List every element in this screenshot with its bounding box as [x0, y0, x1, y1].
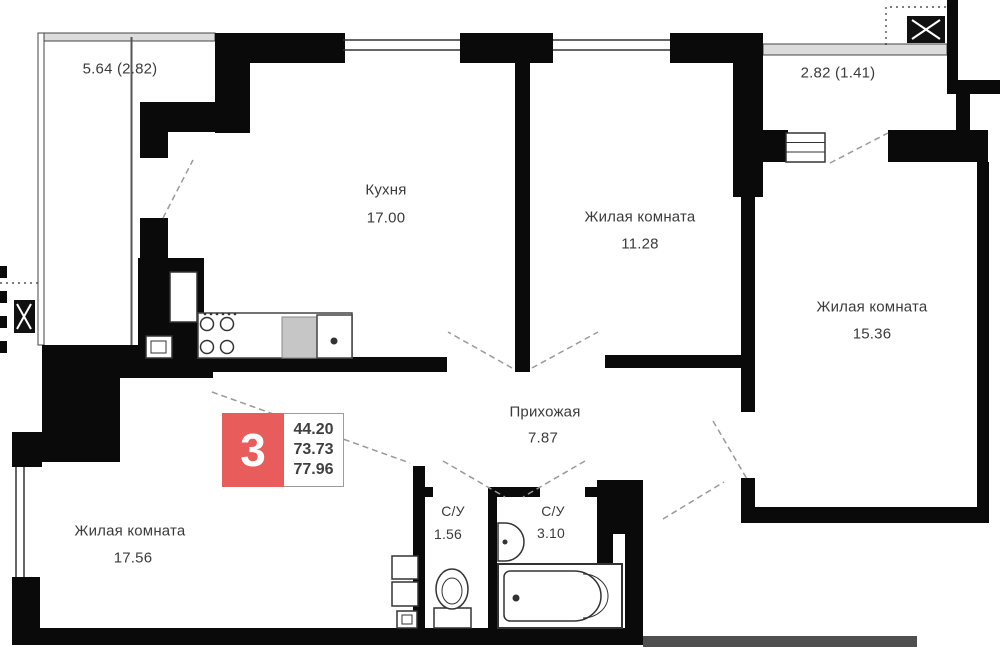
wall-segment	[956, 94, 970, 158]
wall-segment	[947, 0, 958, 84]
balcony-left-dimension: 5.64 (2.82)	[83, 61, 158, 78]
wc-small-label: С/У	[441, 503, 465, 519]
facade-tick	[0, 291, 7, 303]
wall-segment	[140, 102, 168, 158]
living-top-label: Жилая комната	[585, 209, 696, 226]
kitchen-area: 17.00	[367, 210, 406, 227]
living-right-area: 15.36	[853, 326, 892, 343]
wall-segment	[42, 345, 120, 462]
toilet-bowl	[436, 569, 468, 609]
kitchen-sink	[317, 315, 352, 358]
towel-radiator	[392, 556, 418, 579]
wc-small-door-swing	[443, 461, 505, 497]
facade-tick	[0, 316, 7, 328]
wall-segment	[605, 355, 741, 368]
entrance-door-swing	[663, 482, 724, 519]
living-right-door-swing	[713, 421, 747, 479]
wall-segment	[888, 130, 988, 162]
kitchen-vent-box	[170, 272, 197, 322]
wc-large-area: 3.10	[537, 525, 565, 541]
hallway-area: 7.87	[528, 430, 558, 447]
rooms-count: 3	[240, 427, 266, 473]
neighbor-wall	[643, 636, 917, 647]
wc-sink	[498, 523, 524, 561]
wall-segment	[413, 487, 433, 497]
balcony-right-rail	[763, 44, 947, 55]
wall-segment	[741, 197, 755, 412]
balcony-right-dimension: 2.82 (1.41)	[801, 65, 876, 82]
wall-segment	[597, 480, 643, 534]
living-top-area: 11.28	[621, 236, 658, 253]
wall-segment	[12, 432, 42, 467]
kitchen-sink-faucet	[331, 338, 338, 345]
windows	[16, 40, 670, 577]
wall-segment	[460, 33, 553, 63]
wall-segment	[625, 534, 643, 640]
kitchen-fridge	[282, 317, 318, 358]
balcony-steps	[786, 133, 825, 162]
wall-segment	[977, 162, 989, 507]
wall-segment	[140, 218, 168, 264]
kitchen-label: Кухня	[365, 182, 406, 199]
facade-tick	[0, 341, 7, 353]
areas-box: 44.20 73.73 77.96	[284, 413, 344, 487]
living-top-door-swing	[532, 332, 598, 368]
balcony-left-edge	[38, 33, 44, 345]
balcony-right-door-swing	[830, 133, 888, 163]
area-value: 77.96	[293, 460, 333, 480]
wall-segment	[741, 507, 989, 523]
kitchen-door-swing	[448, 332, 512, 368]
toilet-tank	[434, 608, 471, 628]
wall-segment	[488, 487, 497, 640]
towel-radiator	[392, 582, 418, 606]
living-left-label: Жилая комната	[75, 523, 186, 540]
wall-segment	[12, 628, 643, 645]
floor-plan: 5.64 (2.82) 2.82 (1.41) Кухня 17.00 Жила…	[0, 0, 1000, 647]
living-right-label: Жилая комната	[817, 299, 928, 316]
apartment-badge: 3 44.20 73.73 77.96	[222, 413, 344, 487]
area-value: 44.20	[293, 420, 333, 440]
living-left-area: 17.56	[114, 550, 153, 567]
wc-large-door-swing	[523, 461, 585, 497]
wall-segment	[947, 80, 1000, 94]
bathtub-drain	[513, 595, 520, 602]
wc-small-area: 1.56	[434, 526, 462, 542]
wall-segment	[753, 130, 788, 162]
area-value: 73.73	[293, 440, 333, 460]
wall-segment	[733, 33, 763, 197]
wall-segment	[515, 63, 530, 372]
floor-drain	[397, 611, 417, 628]
wc-large-label: С/У	[541, 503, 565, 519]
facade-tick	[0, 266, 7, 278]
rooms-count-box: 3	[222, 413, 284, 487]
wall-segment	[215, 33, 345, 63]
hallway-label: Прихожая	[509, 404, 580, 421]
kitchen-fixtures	[198, 313, 352, 358]
kitchen-balcony-door-swing	[163, 160, 193, 218]
kitchen-vent-grid	[146, 336, 172, 358]
balcony-left-rail	[38, 33, 215, 41]
bathroom-fixtures	[392, 523, 622, 628]
wc-sink-faucet	[503, 540, 508, 545]
